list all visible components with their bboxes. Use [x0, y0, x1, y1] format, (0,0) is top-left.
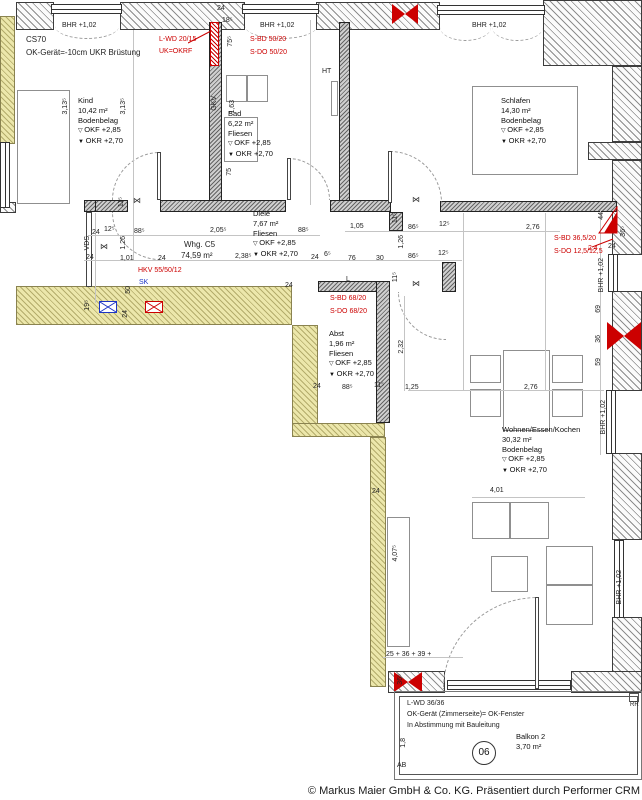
armchair: [491, 556, 528, 592]
room-floor: Fliesen: [228, 129, 273, 139]
room-floor: Bodenbelag: [502, 445, 580, 455]
room-floor: Bodenbelag: [501, 116, 546, 126]
dim-label: GKV: [211, 96, 218, 111]
chair: [552, 355, 583, 383]
room-label-bad: Bad6,22 m²Fliesen▽ OKF +2,85▼ OKR +2,70: [228, 109, 273, 160]
dim-label: 18⁵: [222, 17, 233, 24]
radiator: [331, 81, 338, 116]
wall-joint-marker: ⋈: [412, 280, 420, 288]
annotation-label: S-BD 68/20: [330, 295, 366, 302]
insulation-wall: [0, 16, 15, 144]
lintel-marker: [210, 22, 219, 66]
balcony-note-line1: L-WD 36/36: [407, 700, 444, 707]
dim-label: 11⁵: [392, 272, 399, 282]
annotation-label: SK: [139, 279, 148, 286]
insulation-wall: [292, 325, 318, 425]
dim-label: 1,05: [350, 223, 364, 230]
room-floor: Fliesen: [253, 229, 298, 239]
room-okr: ▼ OKR +2,70: [502, 465, 580, 476]
dim-label: 11⁵: [374, 382, 384, 389]
dim-label: 24: [92, 229, 100, 236]
room-name: Balkon 2: [516, 732, 545, 742]
dim-label: 1,26: [120, 236, 127, 250]
dim-label: 86⁵: [408, 224, 419, 231]
interior-wall: [330, 200, 391, 212]
room-name: Diele: [253, 209, 298, 219]
dim-label: 86⁵: [408, 253, 419, 260]
dim-label: 11⁵: [392, 213, 399, 223]
dim-label: VDS: [84, 236, 91, 250]
dim-label: CS70: [26, 36, 46, 44]
door-leaf: [157, 152, 161, 200]
annotation-label: S-BD 50/20: [250, 36, 286, 43]
room-okf: ▽ OKF +2,85: [329, 358, 374, 369]
annotation-label: S-DO 68/20: [330, 308, 367, 315]
red-valve-box: [145, 301, 163, 313]
annotation-label: S-DO 50/20: [250, 49, 287, 56]
door-leaf: [287, 158, 291, 200]
sofa: [510, 502, 549, 539]
dim-label: 4,07⁵: [392, 545, 399, 562]
room-area: 7,67 m²: [253, 219, 298, 229]
room-label-diele: Diele7,67 m²Fliesen▽ OKF +2,85▼ OKR +2,7…: [253, 209, 298, 260]
dim-label: 30: [376, 255, 384, 262]
balcony-note-line3: In Abstimmung mit Bauleitung: [407, 722, 500, 729]
dim-label: 88⁵: [134, 228, 145, 235]
room-okf: ▽ OKF +2,85: [253, 238, 298, 249]
dim-label: 19⁵: [84, 300, 91, 311]
exterior-wall: [543, 0, 642, 66]
dim-label: 2,05⁵: [210, 227, 227, 234]
dim-label: Whg. C5: [184, 241, 215, 249]
dim-label: 36⁵: [397, 674, 404, 685]
sofa: [546, 546, 593, 585]
dim-label: 88⁵: [298, 227, 309, 234]
door-arc: [443, 597, 538, 689]
interior-wall: [440, 201, 617, 212]
room-area: 14,30 m²: [501, 106, 546, 116]
chair: [552, 389, 583, 417]
dim-label: 1,63: [229, 100, 236, 114]
annotation-label: L-WD 20/15: [159, 36, 196, 43]
bath-vanity: [247, 75, 268, 102]
door-arc: [112, 152, 160, 200]
red-bowtie-marker: [391, 3, 419, 25]
copyright-footer: © Markus Maier GmbH & Co. KG. Präsentier…: [308, 785, 640, 797]
chair: [470, 389, 501, 417]
door-leaf: [535, 597, 539, 689]
dim-label: 24: [122, 310, 129, 318]
sofa: [546, 585, 593, 625]
dimension-line: [95, 213, 96, 303]
dim-label: 1,26: [398, 235, 405, 249]
room-label-kind: Kind10,42 m²Bodenbelag▽ OKF +2,85▼ OKR +…: [78, 96, 123, 147]
dim-label: 59: [595, 358, 602, 366]
room-okf: ▽ OKF +2,85: [501, 125, 546, 136]
red-corner-marker: [598, 206, 618, 234]
door-arc: [398, 292, 446, 340]
exterior-wall: [120, 2, 245, 30]
dim-label: 50: [125, 286, 132, 294]
dim-label: 24: [372, 488, 380, 495]
dim-label: 74,59 m²: [181, 252, 213, 260]
dimension-line: [463, 213, 464, 390]
dim-label: BHR +1,02: [616, 570, 623, 604]
dim-label: 2,32: [398, 340, 405, 354]
room-okr: ▼ OKR +2,70: [253, 249, 298, 260]
window: [606, 390, 616, 454]
room-label-balkon: Balkon 23,70 m²: [516, 732, 545, 752]
bath-vanity: [226, 75, 247, 102]
exterior-wall: [571, 671, 642, 693]
dim-label: 88⁵: [342, 384, 353, 391]
dim-label: HT: [322, 68, 331, 75]
dim-label: 24: [608, 243, 616, 250]
dim-label: L: [346, 276, 350, 283]
dim-label: BHR +1,02: [600, 400, 607, 434]
window: [0, 142, 10, 208]
interior-wall: [84, 200, 96, 212]
dim-label: BHR +1,02: [62, 22, 96, 29]
annotation-label: 2,4: [588, 245, 598, 252]
room-okr: ▼ OKR +2,70: [228, 149, 273, 160]
room-area: 1,96 m²: [329, 339, 374, 349]
exterior-wall: [612, 66, 642, 142]
dim-label: 11⁵: [118, 197, 125, 207]
wall-joint-marker: ⋈: [100, 243, 108, 251]
dim-label: 69: [595, 305, 602, 313]
dim-label: 24: [285, 282, 293, 289]
dim-label: 2,76: [526, 224, 540, 231]
room-okr: ▼ OKR +2,70: [78, 136, 123, 147]
annotation-label: S-BD 36,5/20: [554, 235, 596, 242]
exterior-wall: [612, 453, 642, 540]
balcony-note-line2: OK-Gerät (Zimmerseite)= OK-Fenster: [407, 711, 524, 718]
interior-wall: [442, 262, 456, 292]
room-okf: ▽ OKF +2,85: [78, 125, 123, 136]
dim-label: 12⁵: [438, 250, 449, 257]
room-okf: ▽ OKF +2,85: [228, 138, 273, 149]
dim-label: 36⁵: [620, 226, 627, 237]
insulation-wall: [370, 437, 386, 687]
room-name: Schlafen: [501, 96, 546, 106]
annotation-label: UK=OKRF: [159, 48, 192, 55]
dim-label: 36: [595, 335, 602, 343]
room-floor: Fliesen: [329, 349, 374, 359]
dim-label: 24: [217, 5, 225, 12]
wall-joint-marker: ⋈: [412, 196, 420, 204]
room-name: Wohnen/Essen/Kochen: [502, 425, 580, 435]
exterior-wall: [588, 142, 642, 160]
room-area: 30,32 m²: [502, 435, 580, 445]
chair: [470, 355, 501, 383]
wall-joint-marker: ⋈: [133, 197, 141, 205]
room-area: 3,70 m²: [516, 742, 545, 752]
room-name: Abst: [329, 329, 374, 339]
dim-label: 12⁵: [439, 221, 450, 228]
dim-label: 75⁵: [227, 36, 234, 47]
dim-label: 3,13⁵: [62, 98, 69, 115]
room-okf: ▽ OKF +2,85: [502, 454, 580, 465]
rr-label: RR: [630, 702, 639, 708]
dim-label: 6⁵: [324, 251, 331, 258]
blue-valve-box: [99, 301, 117, 313]
exterior-wall: [316, 2, 440, 30]
position-number-badge: 06: [472, 741, 496, 765]
dim-label: 24: [313, 383, 321, 390]
room-area: 10,42 m²: [78, 106, 123, 116]
room-area: 6,22 m²: [228, 119, 273, 129]
floor-plan: L-WD 36/36 OK-Gerät (Zimmerseite)= OK-Fe…: [0, 0, 642, 800]
window: [608, 254, 618, 292]
room-label-abst: Abst1,96 m²Fliesen▽ OKF +2,85▼ OKR +2,70: [329, 329, 374, 380]
door-arc: [288, 158, 330, 200]
dimension-line: [84, 260, 462, 261]
dim-label: BHR +1,02: [598, 258, 605, 292]
room-name: Kind: [78, 96, 123, 106]
dim-label: 12⁵: [104, 226, 115, 233]
dimension-line: [133, 30, 134, 260]
dim-label: 2,76: [524, 384, 538, 391]
dim-label: 75: [226, 168, 233, 176]
dimension-box: [387, 517, 410, 647]
room-floor: Bodenbelag: [78, 116, 123, 126]
dim-label: 3,13⁵: [120, 98, 127, 115]
dim-label: BHR +1,02: [260, 22, 294, 29]
dim-label: 1,8: [400, 738, 407, 748]
dim-label: 4,01: [490, 487, 504, 494]
dim-label: 25 + 36 + 39 +: [386, 651, 431, 658]
room-okr: ▼ OKR +2,70: [501, 136, 546, 147]
dim-label: 24: [311, 254, 319, 261]
dim-label: 24: [158, 255, 166, 262]
dimension-line: [310, 20, 311, 205]
room-label-wohnen: Wohnen/Essen/Kochen30,32 m²Bodenbelag▽ O…: [502, 425, 580, 476]
dimension-line: [545, 213, 546, 390]
dimension-line: [408, 390, 604, 391]
sofa: [472, 502, 510, 539]
dim-label: 76: [348, 255, 356, 262]
dim-label: 24: [86, 254, 94, 261]
interior-wall: [376, 281, 390, 423]
dim-label: 44: [598, 212, 605, 220]
dim-label: OK-Gerät=-10cm UKR Brüstung: [26, 49, 140, 57]
red-bowtie-marker: [606, 321, 642, 351]
downpipe-symbol: [629, 693, 639, 702]
dim-label: 1,25: [405, 384, 419, 391]
dim-label: 1,01: [120, 255, 134, 262]
door-leaf: [388, 151, 392, 203]
room-label-schlafen: Schlafen14,30 m²Bodenbelag▽ OKF +2,85▼ O…: [501, 96, 546, 147]
annotation-label: HKV 55/50/12: [138, 267, 182, 274]
dimension-line: [472, 497, 585, 498]
interior-wall: [339, 22, 350, 203]
exterior-wall: [16, 2, 54, 30]
dim-label: BHR +1,02: [472, 22, 506, 29]
insulation-wall: [292, 423, 385, 437]
ab-label: AB: [397, 762, 406, 769]
room-okr: ▼ OKR +2,70: [329, 369, 374, 380]
dim-label: 2,38⁵: [235, 253, 252, 260]
